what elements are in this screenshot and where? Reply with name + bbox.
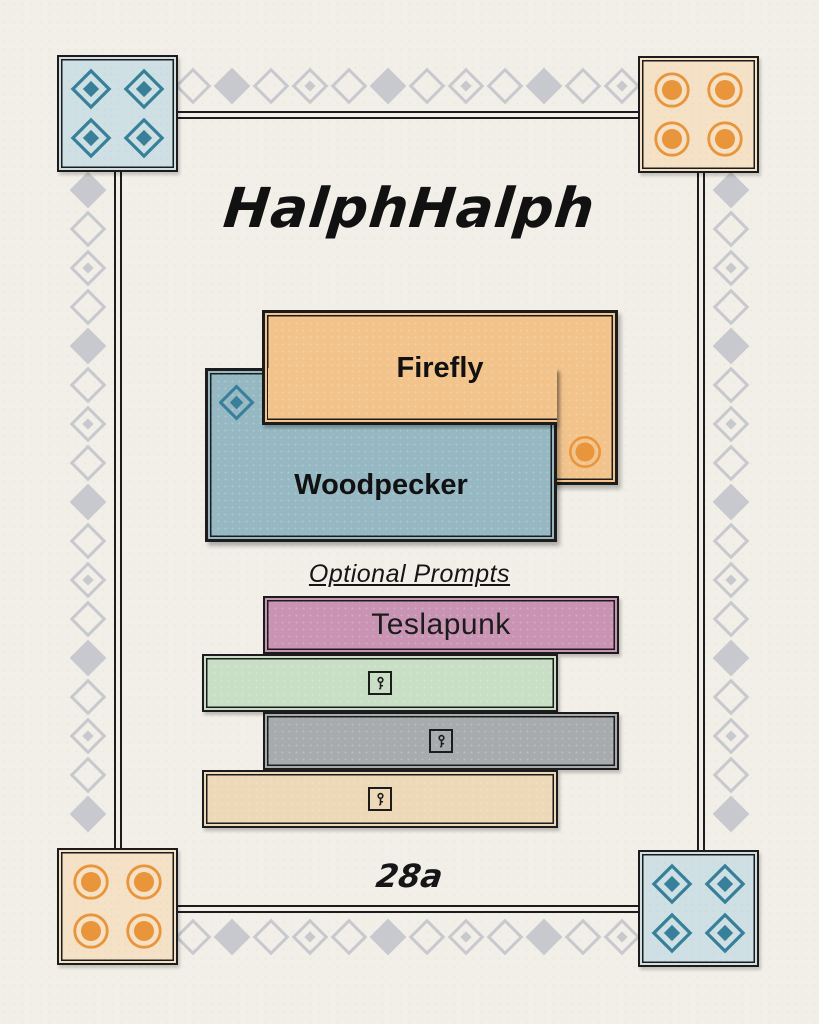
optional-prompts-heading: Optional Prompts — [0, 560, 819, 589]
key-icon — [368, 787, 392, 811]
prompt-bar-locked[interactable] — [202, 770, 558, 828]
prompt-bar-label: Teslapunk — [371, 608, 511, 642]
prompt-bar-locked[interactable] — [263, 712, 619, 770]
key-icon — [368, 671, 392, 695]
poster-title: HalphHalph — [0, 176, 819, 240]
page-number: 28a — [0, 857, 819, 895]
prompt-bar-teslapunk[interactable]: Teslapunk — [263, 596, 619, 654]
poster-page: HalphHalph Woodpecker Firefly Optional P… — [0, 0, 819, 1024]
key-icon — [429, 729, 453, 753]
prompt-bar-locked[interactable] — [202, 654, 558, 712]
